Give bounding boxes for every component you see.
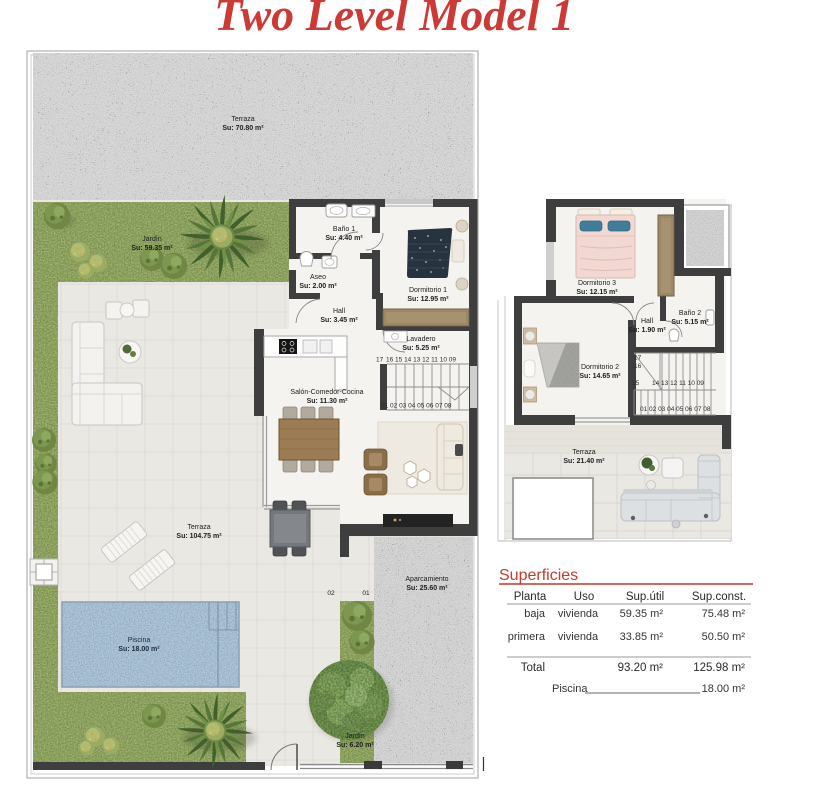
svg-text:Total: Total bbox=[521, 662, 545, 674]
svg-text:Hall: Hall bbox=[641, 318, 654, 325]
svg-text:14 13 12 11 10 09: 14 13 12 11 10 09 bbox=[652, 380, 704, 387]
svg-text:Lavadero: Lavadero bbox=[406, 336, 435, 343]
svg-text:Baño 1: Baño 1 bbox=[333, 226, 355, 233]
svg-text:baja: baja bbox=[524, 608, 546, 620]
svg-text:Piscina: Piscina bbox=[128, 637, 151, 644]
svg-text:15: 15 bbox=[632, 380, 640, 387]
svg-text:Terraza: Terraza bbox=[572, 449, 595, 456]
svg-text:59.35 m²: 59.35 m² bbox=[620, 608, 664, 620]
svg-text:Su: 21.40 m²: Su: 21.40 m² bbox=[563, 458, 605, 465]
svg-text:Su: 12.95 m²: Su: 12.95 m² bbox=[407, 296, 449, 303]
svg-text:Su: 2.00 m²: Su: 2.00 m² bbox=[299, 283, 337, 290]
svg-text:Su: 18.00 m²: Su: 18.00 m² bbox=[118, 646, 160, 653]
svg-text:Two Level Model 1: Two Level Model 1 bbox=[214, 0, 574, 40]
svg-text:Jardín: Jardín bbox=[142, 236, 162, 243]
svg-text:Su: 5.15 m²: Su: 5.15 m² bbox=[671, 319, 709, 326]
svg-text:Su: 14.65 m²: Su: 14.65 m² bbox=[579, 373, 621, 380]
svg-text:Baño 2: Baño 2 bbox=[679, 310, 701, 317]
svg-text:Su: 4.40 m²: Su: 4.40 m² bbox=[325, 235, 363, 242]
svg-text:Jardín: Jardín bbox=[345, 733, 365, 740]
svg-text:Sup.útil: Sup.útil bbox=[626, 591, 664, 603]
svg-text:Hall: Hall bbox=[333, 308, 346, 315]
svg-text:Aparcamiento: Aparcamiento bbox=[405, 576, 448, 583]
svg-text:50.50 m²: 50.50 m² bbox=[702, 631, 746, 643]
svg-text:Planta: Planta bbox=[514, 591, 547, 603]
svg-text:Su: 5.25 m²: Su: 5.25 m² bbox=[402, 345, 440, 352]
svg-text:02: 02 bbox=[327, 590, 335, 597]
svg-text:Dormitorio 1: Dormitorio 1 bbox=[409, 287, 447, 294]
svg-text:16 15 14 13 12 11 10 09: 16 15 14 13 12 11 10 09 bbox=[386, 357, 456, 364]
svg-text:01 02 03 04 05 06 07 08: 01 02 03 04 05 06 07 08 bbox=[381, 403, 452, 410]
svg-text:Sup.const.: Sup.const. bbox=[692, 591, 746, 603]
svg-text:17: 17 bbox=[634, 355, 642, 362]
svg-text:125.98 m²: 125.98 m² bbox=[693, 662, 745, 674]
svg-text:01 02 03 04 05 06 07 08: 01 02 03 04 05 06 07 08 bbox=[640, 406, 711, 413]
svg-text:18.00 m²: 18.00 m² bbox=[702, 683, 746, 695]
svg-text:vivienda: vivienda bbox=[558, 608, 599, 620]
svg-text:Su: 1.90 m²: Su: 1.90 m² bbox=[628, 327, 666, 334]
svg-text:Uso: Uso bbox=[574, 591, 594, 603]
svg-text:Su: 11.30 m²: Su: 11.30 m² bbox=[307, 398, 349, 405]
svg-text:Terraza: Terraza bbox=[231, 116, 254, 123]
svg-text:93.20 m²: 93.20 m² bbox=[618, 662, 664, 674]
svg-text:Salón-Comedor-Cocina: Salón-Comedor-Cocina bbox=[290, 389, 363, 396]
svg-text:Su: 104.75 m²: Su: 104.75 m² bbox=[176, 533, 222, 540]
svg-text:Su: 25.60 m²: Su: 25.60 m² bbox=[406, 585, 448, 592]
svg-text:Su: 70.80 m²: Su: 70.80 m² bbox=[222, 125, 264, 132]
svg-text:Aseo: Aseo bbox=[310, 274, 326, 281]
svg-text:Su: 6.20 m²: Su: 6.20 m² bbox=[336, 742, 374, 749]
svg-text:17: 17 bbox=[376, 357, 384, 364]
svg-text:Dormitorio 2: Dormitorio 2 bbox=[581, 364, 619, 371]
svg-text:Dormitorio 3: Dormitorio 3 bbox=[578, 280, 616, 287]
svg-text:75.48 m²: 75.48 m² bbox=[702, 608, 746, 620]
svg-text:primera: primera bbox=[508, 631, 546, 643]
svg-text:vivienda: vivienda bbox=[558, 631, 599, 643]
svg-text:Su: 59.35 m²: Su: 59.35 m² bbox=[131, 245, 173, 252]
svg-text:33.85 m²: 33.85 m² bbox=[620, 631, 664, 643]
svg-text:01: 01 bbox=[362, 590, 370, 597]
svg-text:Superficies: Superficies bbox=[499, 567, 578, 584]
svg-text:Su: 12.15 m²: Su: 12.15 m² bbox=[576, 289, 618, 296]
svg-text:16: 16 bbox=[634, 363, 642, 370]
svg-text:Su: 3.45 m²: Su: 3.45 m² bbox=[320, 317, 358, 324]
svg-text:Terraza: Terraza bbox=[187, 524, 210, 531]
svg-text:Piscina: Piscina bbox=[552, 683, 588, 695]
